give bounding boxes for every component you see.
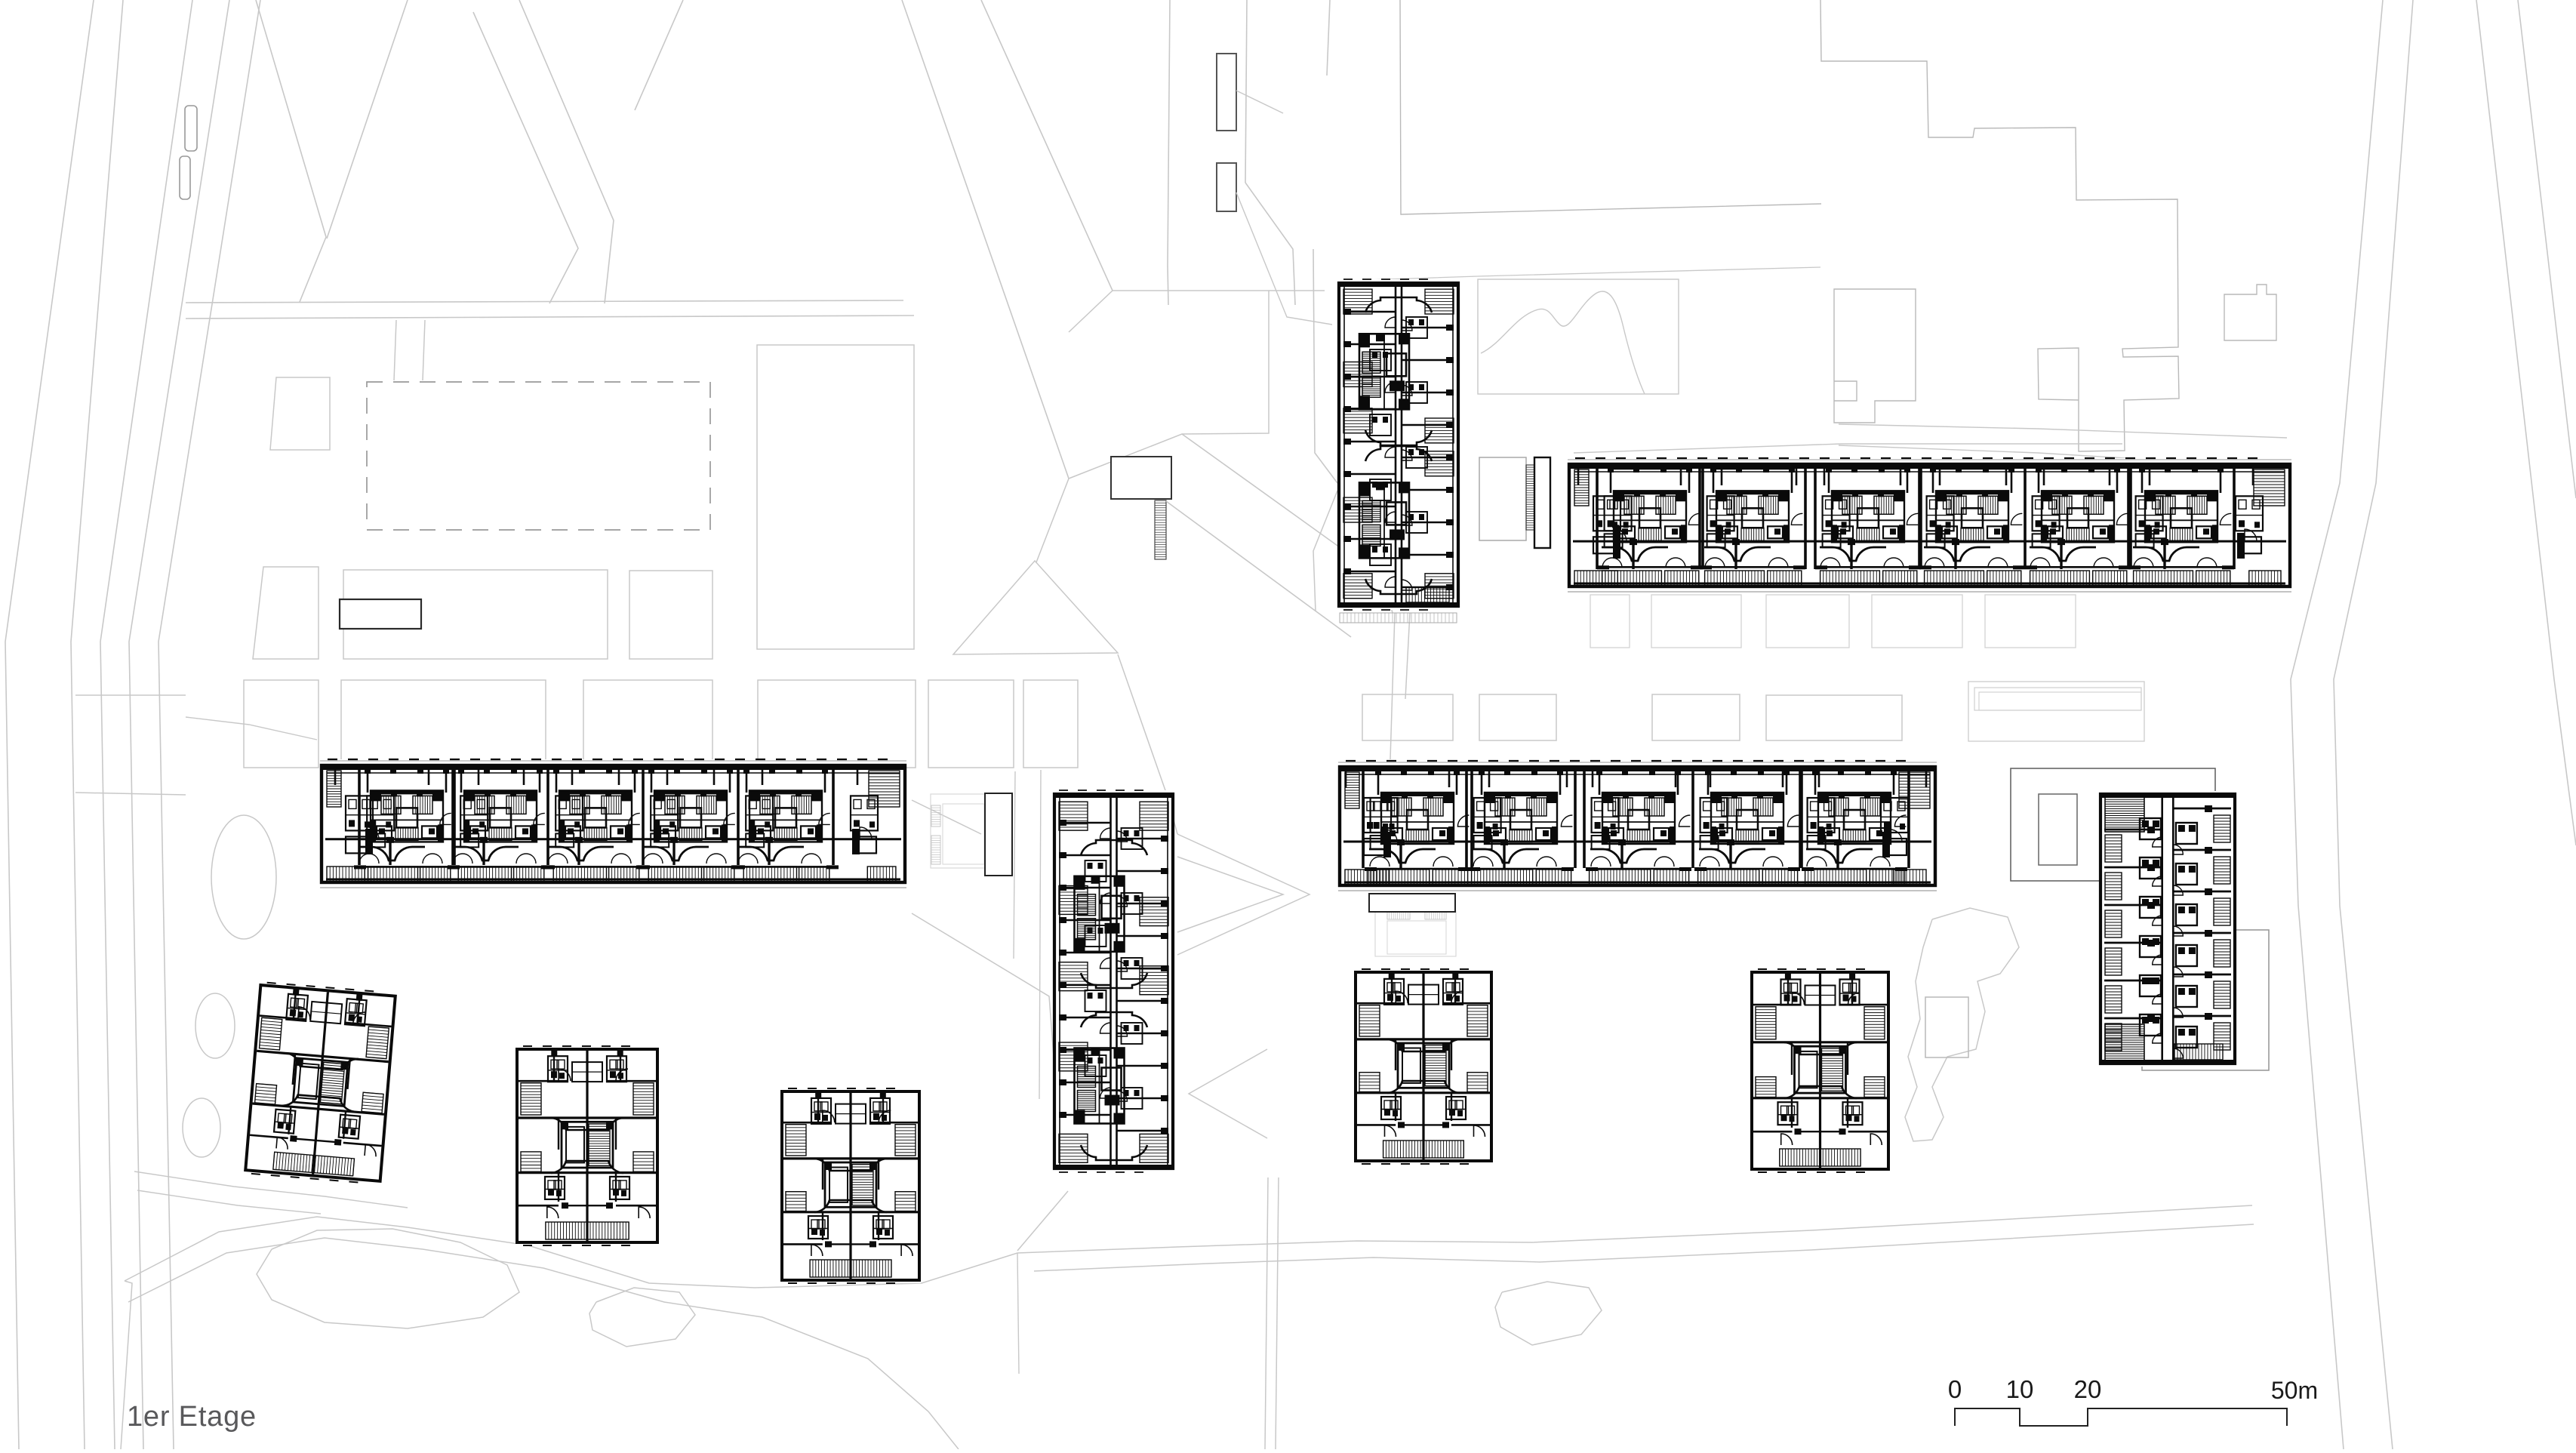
svg-text:0: 0 [1948, 1375, 1962, 1403]
svg-text:10: 10 [2006, 1375, 2034, 1403]
svg-text:1er Etage: 1er Etage [127, 1401, 257, 1433]
svg-text:20: 20 [2074, 1375, 2102, 1403]
svg-text:50m: 50m [2271, 1377, 2318, 1404]
